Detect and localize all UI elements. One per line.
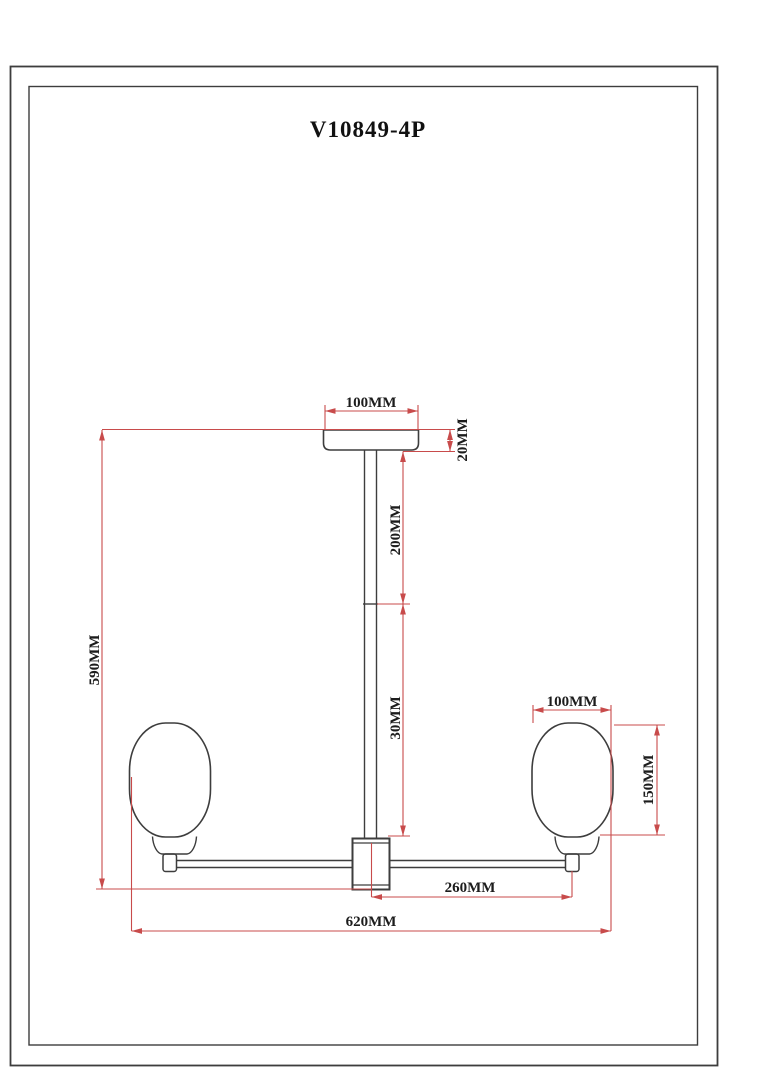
overall-height-label: 590MM (87, 635, 103, 686)
arm-span-label: 260MM (445, 880, 496, 896)
right-shade (532, 723, 613, 837)
lower-rod-label: 30MM (388, 696, 404, 739)
shade-width-label: 100MM (547, 694, 598, 710)
right-socket (566, 854, 580, 872)
fixture-outline (130, 430, 614, 890)
technical-drawing: V10849-4P (0, 0, 763, 1080)
canopy-height-label: 20MM (455, 418, 471, 461)
drawing-page: V10849-4P (0, 0, 763, 1080)
drawing-title: V10849-4P (310, 117, 426, 142)
canopy-width-label: 100MM (346, 395, 397, 411)
right-shade-neck (555, 837, 599, 855)
dimension-lines (96, 405, 665, 931)
left-socket (163, 854, 177, 872)
left-shade (130, 723, 211, 837)
overall-width-label: 620MM (346, 914, 397, 930)
upper-rod-label: 200MM (388, 505, 404, 556)
left-shade-neck (153, 837, 197, 855)
shade-height-label: 150MM (641, 755, 657, 806)
ceiling-canopy (324, 430, 419, 450)
inner-border (29, 87, 698, 1046)
